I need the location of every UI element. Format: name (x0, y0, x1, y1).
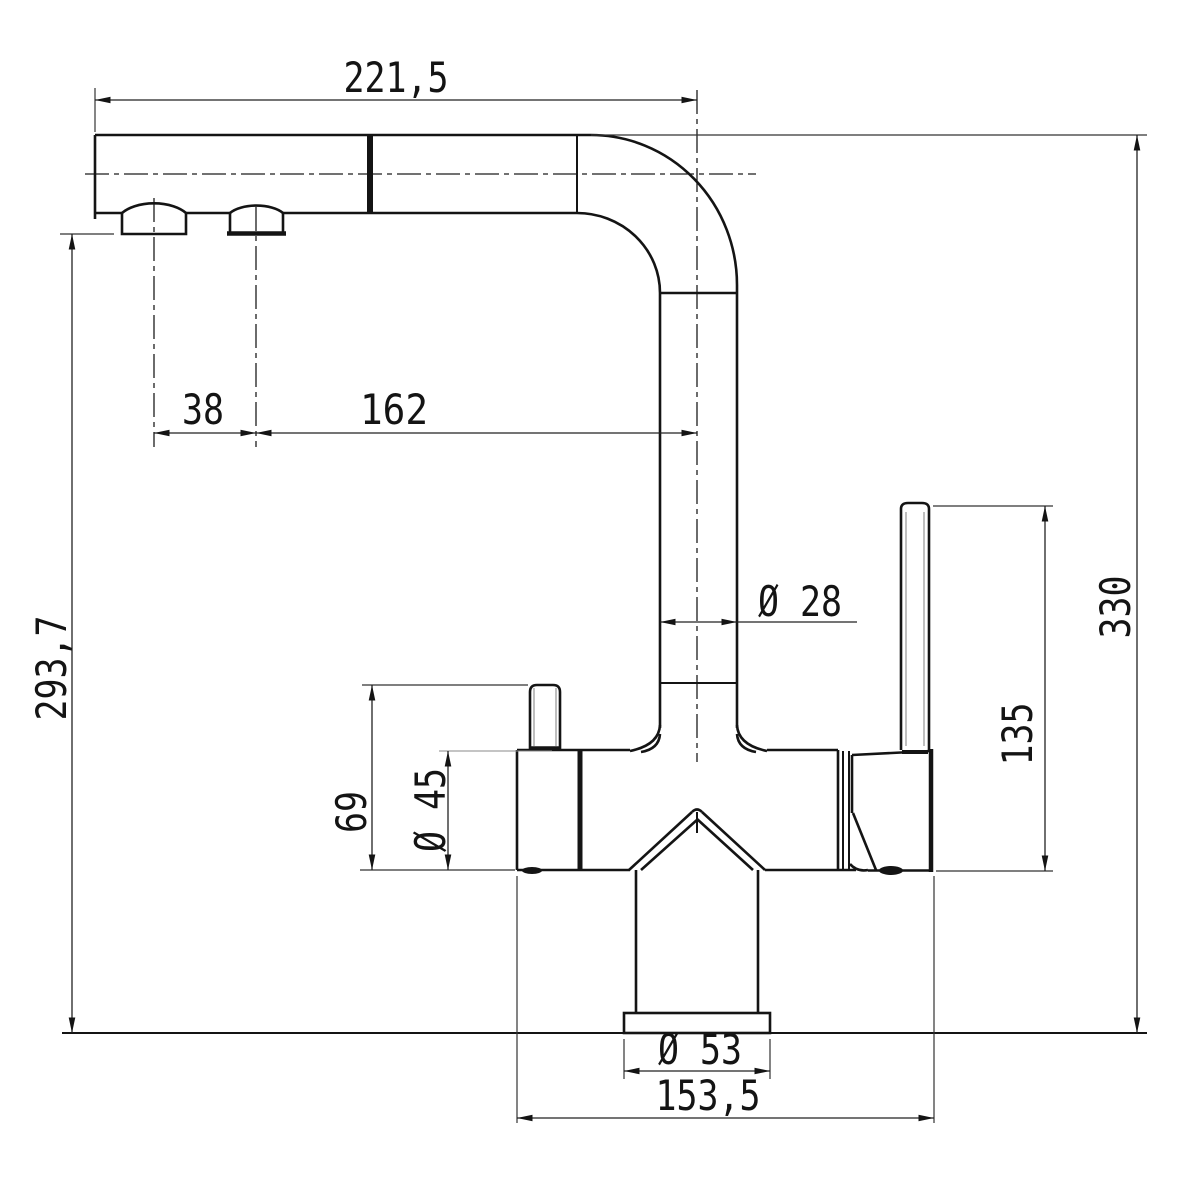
elbow-inner-arc (577, 213, 660, 293)
pipe-bell-outer (630, 725, 767, 751)
dim-body-length-label: 153,5 (656, 1071, 761, 1120)
dim-outlet-height: 293,7 (27, 234, 114, 1033)
dim-outlet-height-label: 293,7 (27, 616, 76, 721)
handle-rod-outline (901, 503, 929, 750)
cone-peak-cap (692, 810, 702, 813)
cone-left-inner (641, 819, 698, 870)
dim-total-height: 330 (591, 135, 1147, 1033)
dim-body-diameter: Ø 45 (406, 751, 552, 870)
dim-pipe-diameter: Ø 28 (660, 577, 857, 626)
dim-total-height-label: 330 (1091, 576, 1140, 639)
cap-lever-diagonal (853, 813, 876, 870)
dim-pipe-diameter-label: Ø 28 (758, 577, 842, 626)
body-left-screw (522, 867, 542, 874)
cap-set-screw (879, 866, 903, 875)
dim-aerator-spacing: 38 (154, 385, 256, 434)
technical-drawing-canvas: 221,5 38 162 293,7 330 Ø 28 (0, 0, 1200, 1200)
faucet-drawing-svg: 221,5 38 162 293,7 330 Ø 28 (0, 0, 1200, 1200)
pivot-ring-lines (843, 751, 849, 869)
faucet-outline (62, 134, 1147, 1033)
dim-body-length: 153,5 (517, 876, 934, 1123)
cone-right-inner (697, 819, 753, 870)
dim-aerator-to-axis-label: 162 (360, 385, 428, 434)
dim-handle-height-label: 135 (993, 703, 1042, 766)
dim-body-diameter-label: Ø 45 (406, 768, 455, 852)
pipe-bell-inner (641, 734, 756, 752)
cone-left-outer (629, 812, 692, 870)
dim-spout-reach: 221,5 (95, 53, 697, 132)
dim-knob-height-label: 69 (327, 791, 376, 833)
dim-base-diameter-label: Ø 53 (658, 1025, 742, 1074)
elbow-outer-arc (591, 135, 737, 285)
dim-spout-reach-label: 221,5 (344, 53, 449, 102)
handle-rod-inner-lines (906, 512, 924, 746)
dim-aerator-to-axis: 162 (256, 385, 697, 434)
knob-inner-lines (534, 688, 556, 746)
cone-right-outer (702, 812, 765, 870)
dim-aerator-spacing-label: 38 (182, 385, 224, 434)
dim-handle-height: 135 (933, 506, 1053, 871)
